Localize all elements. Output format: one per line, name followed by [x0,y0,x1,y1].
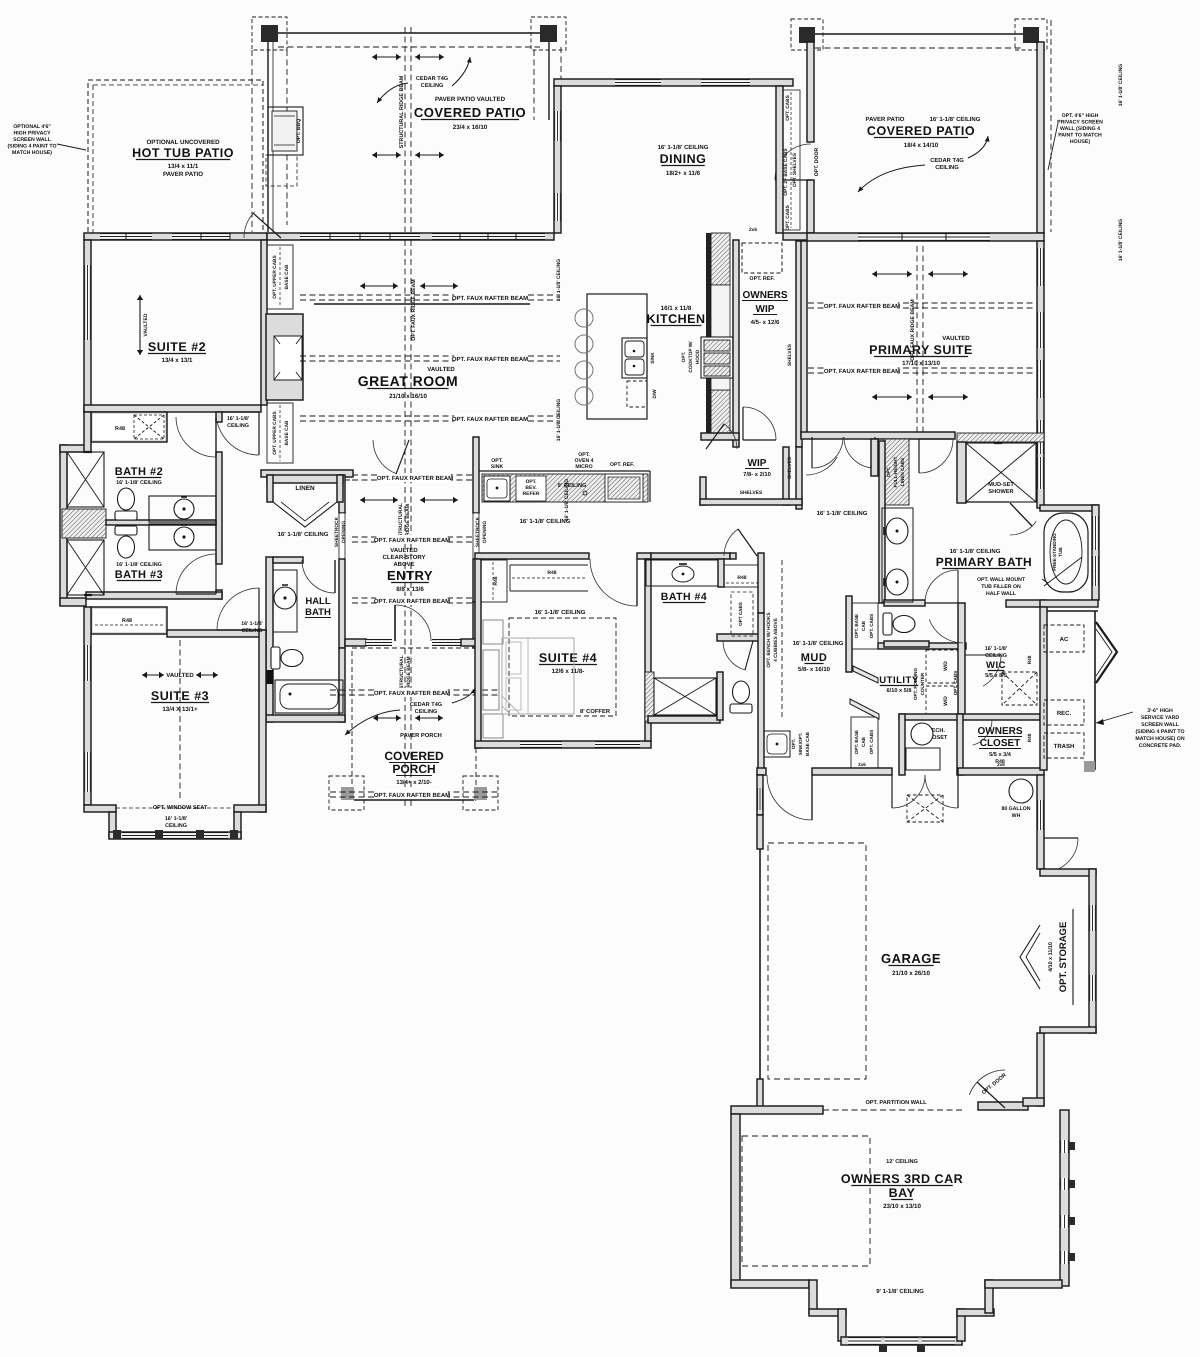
svg-text:OPT. FAUX RAFTER BEAM: OPT. FAUX RAFTER BEAM [824,368,900,375]
svg-text:16' 1-1/8' CEILING: 16' 1-1/8' CEILING [116,480,162,486]
svg-text:OPT. BASE: OPT. BASE [854,614,859,638]
svg-text:SHELVES: SHELVES [787,343,793,366]
svg-text:VAULTED: VAULTED [143,313,149,336]
svg-text:R48: R48 [122,618,132,624]
svg-text:D/W: D/W [652,389,658,399]
svg-text:GREAT ROOM: GREAT ROOM [358,373,458,389]
svg-text:16/1 x 11/8: 16/1 x 11/8 [661,305,692,312]
svg-text:BATH #2: BATH #2 [115,466,164,478]
svg-text:OPT. 2F BASE CABS: OPT. 2F BASE CABS [783,148,789,196]
svg-text:BATH #4: BATH #4 [661,591,707,603]
svg-text:OPT. FAUX RAFTER BEAM: OPT. FAUX RAFTER BEAM [452,356,528,363]
svg-text:16' 1-1/8' CEILING: 16' 1-1/8' CEILING [793,640,844,647]
svg-text:16' 1-1/8' CEILING: 16' 1-1/8' CEILING [1118,219,1124,262]
svg-text:8/8 x 13/6: 8/8 x 13/6 [396,586,424,593]
svg-text:18/2+ x 11/6: 18/2+ x 11/6 [666,170,701,177]
svg-text:W/D: W/D [943,661,949,671]
svg-text:5/5 x 3/4: 5/5 x 3/4 [989,751,1012,758]
svg-text:OPT. BASE: OPT. BASE [854,730,859,754]
svg-text:VAULTED: VAULTED [427,366,455,373]
svg-text:OPT. FAUX RIDGE BEAM: OPT. FAUX RIDGE BEAM [411,279,417,340]
svg-text:PAVER PATIO VAULTED: PAVER PATIO VAULTED [435,96,506,103]
svg-text:SCREEN WALL: SCREEN WALL [1141,722,1180,728]
svg-text:HOT TUB PATIO: HOT TUB PATIO [132,146,234,160]
svg-text:PRIMARY BATH: PRIMARY BATH [936,555,1032,569]
svg-text:CAB: CAB [861,736,866,747]
svg-text:LINEN CABS: LINEN CABS [900,458,905,486]
svg-text:COOKTOP W/: COOKTOP W/ [688,341,694,373]
svg-text:OPT. FAUX RAFTER BEAM: OPT. FAUX RAFTER BEAM [374,690,450,697]
svg-text:CEDAR T4G: CEDAR T4G [416,76,448,82]
svg-text:OPT. BBQ: OPT. BBQ [296,119,302,144]
svg-text:R48: R48 [1027,655,1033,664]
svg-text:16' 1-1/8' CEILING: 16' 1-1/8' CEILING [556,259,562,302]
svg-text:WH: WH [1012,813,1021,819]
svg-text:DINING: DINING [660,152,707,166]
svg-text:CEILING: CEILING [165,823,187,829]
svg-text:13/4 x 11/1: 13/4 x 11/1 [168,163,199,170]
svg-text:OPT. FAUX RAFTER BEAM: OPT. FAUX RAFTER BEAM [374,792,450,799]
svg-text:MUD: MUD [801,652,828,664]
svg-text:REC.: REC. [1057,710,1072,717]
svg-text:R48: R48 [115,426,125,432]
svg-text:TUB FILLER ON: TUB FILLER ON [981,584,1021,590]
svg-text:RIDGE BEAM: RIDGE BEAM [405,504,411,536]
svg-text:9' CEILING: 9' CEILING [558,483,587,489]
svg-text:BASE CAB: BASE CAB [284,264,290,290]
svg-text:PAVER PORCH: PAVER PORCH [400,732,442,739]
svg-text:CEDAR T4G: CEDAR T4G [930,157,964,164]
svg-text:AC: AC [1060,636,1069,643]
svg-text:FREE-STANDING: FREE-STANDING [1052,533,1057,571]
svg-text:OPT. UPPER CABS: OPT. UPPER CABS [272,410,278,454]
svg-text:VAULTED: VAULTED [390,547,418,554]
svg-text:16' 1-1/8' CEILING: 16' 1-1/8' CEILING [116,562,162,568]
svg-text:16' 1-1/8' CEILING: 16' 1-1/8' CEILING [930,116,981,123]
svg-text:12' CEILING: 12' CEILING [886,1159,918,1165]
svg-text:OPT. WINDOW SEAT: OPT. WINDOW SEAT [153,805,208,811]
svg-text:18/4 x 14/10: 18/4 x 14/10 [904,142,939,149]
svg-text:23/10 x 13/10: 23/10 x 13/10 [883,1203,921,1210]
svg-text:OPT. FOLDING: OPT. FOLDING [913,667,918,700]
svg-text:OPENING: OPENING [482,521,488,543]
svg-text:ENTRY: ENTRY [387,568,433,583]
svg-text:OPT. STORAGE: OPT. STORAGE [1058,922,1069,993]
svg-text:SHELVES: SHELVES [740,490,763,496]
svg-text:BASE CAB: BASE CAB [284,420,290,446]
svg-text:SUITE #2: SUITE #2 [148,340,206,354]
svg-text:OPT. UPPER CABS: OPT. UPPER CABS [272,254,278,298]
svg-text:PAVER PATIO: PAVER PATIO [866,116,905,123]
svg-text:HALL: HALL [305,596,331,607]
svg-text:CEILING: CEILING [985,653,1007,659]
svg-text:R48: R48 [547,570,556,576]
svg-text:2x6: 2x6 [749,227,757,233]
svg-text:CEILING: CEILING [227,423,249,429]
svg-text:WIP: WIP [756,304,775,315]
svg-text:WIC: WIC [986,660,1006,671]
svg-text:OPT. FAUX RAFTER BEAM: OPT. FAUX RAFTER BEAM [452,416,528,423]
svg-text:16' 1-1/8': 16' 1-1/8' [165,816,187,822]
svg-text:OPT. FAUX RIDGE BEAM: OPT. FAUX RIDGE BEAM [910,299,916,360]
svg-text:OPT.: OPT. [681,352,687,363]
svg-text:OPT. CABS: OPT. CABS [869,730,874,755]
svg-text:PRIMARY SUITE: PRIMARY SUITE [869,343,973,357]
svg-text:OPT. FAUX RAFTER BEAM: OPT. FAUX RAFTER BEAM [374,537,450,544]
svg-text:OPT. CABS: OPT. CABS [785,94,791,120]
svg-text:CEILING: CEILING [421,83,444,89]
svg-text:16' 1-1/8': 16' 1-1/8' [985,646,1007,652]
svg-text:R48: R48 [493,576,499,585]
svg-text:SINK/OPT.: SINK/OPT. [798,733,803,755]
svg-text:6/10 x 5/8: 6/10 x 5/8 [887,687,912,694]
svg-text:2x6: 2x6 [858,762,866,767]
svg-text:7/8- x 2/10: 7/8- x 2/10 [743,471,771,478]
svg-text:SINK: SINK [491,464,504,470]
svg-text:5/8- x 16/10: 5/8- x 16/10 [798,666,831,673]
svg-text:16' 1-1/8' CEILING: 16' 1-1/8' CEILING [278,531,329,538]
svg-text:4 CUBBIES ABOVE: 4 CUBBIES ABOVE [773,617,779,662]
svg-text:OPTIONAL 4'6": OPTIONAL 4'6" [13,124,51,130]
svg-text:CONCRETE PAD.: CONCRETE PAD. [1139,743,1182,749]
svg-text:16' 1-1/8' CEILING: 16' 1-1/8' CEILING [817,510,868,517]
svg-text:MICRO: MICRO [575,464,592,470]
svg-text:COVERED PATIO: COVERED PATIO [414,105,526,120]
svg-text:MATCH HOUSE): MATCH HOUSE) [12,150,52,156]
svg-text:17/10 x 13/10: 17/10 x 13/10 [902,360,940,367]
svg-text:CEDAR T4G: CEDAR T4G [410,702,442,708]
svg-text:OPT. CABS: OPT. CABS [785,204,791,230]
svg-text:4/5- x 12/6: 4/5- x 12/6 [751,319,780,326]
svg-text:SUITE #4: SUITE #4 [539,651,597,665]
svg-text:OPENING: OPENING [341,521,347,543]
svg-text:FULL-HEIGHT: FULL-HEIGHT [893,456,898,487]
svg-text:OPT. CABS: OPT. CABS [953,671,958,696]
svg-text:OPT. PARTITION WALL: OPT. PARTITION WALL [865,1100,927,1106]
svg-text:23/4 x 16/10: 23/4 x 16/10 [453,124,488,131]
svg-text:WIP: WIP [748,458,767,469]
svg-text:CEILING: CEILING [415,709,438,715]
svg-text:OPT. FAUX RAFTER BEAM: OPT. FAUX RAFTER BEAM [452,295,528,302]
svg-text:16' 1-1/8' CEILING: 16' 1-1/8' CEILING [564,479,570,522]
svg-text:CAB: CAB [861,620,866,631]
svg-text:CLEAR-STORY: CLEAR-STORY [382,554,425,561]
svg-text:BAY: BAY [889,1186,916,1200]
svg-text:16' 1-1/8' CEILING: 16' 1-1/8' CEILING [950,548,1001,555]
svg-text:BATH: BATH [305,607,331,618]
svg-text:GARAGE: GARAGE [881,951,941,966]
svg-text:MUD-SET: MUD-SET [988,482,1014,488]
svg-text:80 GALLON: 80 GALLON [1001,806,1030,812]
svg-text:OPT CABS: OPT CABS [738,602,743,626]
svg-text:HOOD: HOOD [695,349,701,364]
svg-text:OPT. CABS: OPT. CABS [869,614,874,639]
svg-text:12/6 x 11/8-: 12/6 x 11/8- [552,668,585,675]
svg-text:PAVER PATIO: PAVER PATIO [163,171,203,178]
svg-text:16' 1-1/8' CEILING: 16' 1-1/8' CEILING [556,399,562,442]
svg-text:(SIDING 4 PAINT TO: (SIDING 4 PAINT TO [1135,729,1184,735]
svg-text:VAULTED: VAULTED [166,672,194,679]
svg-text:BATH #3: BATH #3 [115,569,164,581]
svg-text:OPTIONAL UNCOVERED: OPTIONAL UNCOVERED [146,139,220,146]
svg-text:PORCH: PORCH [392,762,435,776]
svg-text:SHEETROCK: SHEETROCK [334,516,340,547]
svg-text:13/4 x 13/1: 13/4 x 13/1 [162,357,194,364]
svg-text:SHEETROCK: SHEETROCK [475,516,481,547]
svg-text:SERVICE YARD: SERVICE YARD [1141,715,1180,721]
svg-text:PAINT TO MATCH: PAINT TO MATCH [1058,133,1102,139]
svg-text:OWNERS: OWNERS [978,726,1023,737]
svg-text:8' COFFER: 8' COFFER [580,708,611,715]
svg-text:TUB: TUB [1058,547,1063,557]
svg-text:OPT. BENCH W/ HOOKS: OPT. BENCH W/ HOOKS [766,612,772,668]
svg-text:OWNERS: OWNERS [743,290,788,301]
svg-text:OPT.: OPT. [791,739,796,749]
svg-text:REFER: REFER [523,491,540,497]
svg-text:COVERED PATIO: COVERED PATIO [867,124,975,138]
svg-text:HOUSE): HOUSE) [1070,139,1090,145]
svg-text:BASE CAB: BASE CAB [805,731,810,756]
svg-text:LINEN: LINEN [295,485,315,492]
svg-text:OPT. 4'6" HIGH: OPT. 4'6" HIGH [1062,113,1099,119]
svg-text:CEILING: CEILING [241,628,262,634]
svg-text:W/D: W/D [943,696,949,706]
svg-text:TRASH: TRASH [1054,743,1075,750]
svg-text:STRUCTURAL RIDGE BEAM: STRUCTURAL RIDGE BEAM [399,75,405,148]
svg-text:VAULTED: VAULTED [942,335,970,342]
svg-text:16' 1-1/8': 16' 1-1/8' [227,416,249,422]
svg-text:OPT.: OPT. [886,467,891,477]
svg-text:3'-6" HIGH: 3'-6" HIGH [1147,708,1173,714]
svg-text:4/10 x 11/10: 4/10 x 11/10 [1048,942,1054,972]
svg-text:16' 1-1/8' CEILING: 16' 1-1/8' CEILING [535,609,586,616]
svg-text:OPT. FAUX RAFTER BEAM: OPT. FAUX RAFTER BEAM [374,598,450,605]
svg-text:OPT. FAUX RAFTER BEAM: OPT. FAUX RAFTER BEAM [824,303,900,310]
svg-text:STRUCTURAL: STRUCTURAL [399,655,405,688]
svg-text:CLOSET: CLOSET [980,738,1021,749]
svg-text:OPT. SHELVES: OPT. SHELVES [792,152,798,187]
svg-text:SUITE #3: SUITE #3 [151,689,209,703]
svg-text:PRIVACY SCREEN: PRIVACY SCREEN [1057,120,1103,126]
svg-text:OPT. REF.: OPT. REF. [610,462,635,468]
svg-text:OPT. REF.: OPT. REF. [749,276,775,282]
svg-text:MATCH HOUSE) ON: MATCH HOUSE) ON [1135,736,1184,742]
svg-text:SHOWER: SHOWER [988,489,1013,495]
svg-text:2x6: 2x6 [997,762,1005,767]
svg-text:R48: R48 [1027,733,1033,742]
svg-text:WALL (SIDING 4: WALL (SIDING 4 [1060,126,1100,132]
svg-text:COUNTER: COUNTER [920,672,925,695]
svg-text:OPT. FAUX RAFTER BEAM: OPT. FAUX RAFTER BEAM [377,475,453,482]
svg-text:16' 1-1/8' CEILING: 16' 1-1/8' CEILING [1118,64,1124,107]
svg-text:KITCHEN: KITCHEN [646,312,705,326]
svg-text:HALF WALL: HALF WALL [986,591,1017,597]
svg-text:RIDGE BEAM: RIDGE BEAM [406,656,412,687]
svg-text:COVERED: COVERED [384,749,444,763]
svg-text:CEILING: CEILING [935,164,959,171]
svg-text:SCREEN WALL: SCREEN WALL [13,137,52,143]
svg-text:9' 1-1/8' CEILING: 9' 1-1/8' CEILING [876,1288,924,1295]
svg-text:21/10 x 16/10: 21/10 x 16/10 [389,393,427,400]
svg-text:13/4+ x 2/10-: 13/4+ x 2/10- [396,779,432,786]
svg-text:16' 1-1/8' CEILING: 16' 1-1/8' CEILING [658,144,709,151]
svg-text:OPT. DOOR: OPT. DOOR [814,147,820,176]
svg-text:21/10 x 26/10: 21/10 x 26/10 [892,970,930,977]
svg-text:SHELVES: SHELVES [787,456,793,479]
svg-text:(SIDING 4 PAINT TO: (SIDING 4 PAINT TO [7,144,56,150]
svg-text:OWNERS 3RD CAR: OWNERS 3RD CAR [841,1172,963,1186]
svg-text:STRUCTURAL: STRUCTURAL [398,503,404,537]
svg-text:16' 1-1/8': 16' 1-1/8' [241,621,263,627]
svg-text:OPT. WALL MOUNT: OPT. WALL MOUNT [977,577,1026,583]
svg-text:ABOVE: ABOVE [393,561,414,568]
svg-text:HIGH PRIVACY: HIGH PRIVACY [13,131,51,137]
svg-text:R48: R48 [737,575,746,581]
svg-text:13/4 X 13/1+: 13/4 X 13/1+ [162,706,198,713]
svg-text:SINK: SINK [650,352,656,364]
